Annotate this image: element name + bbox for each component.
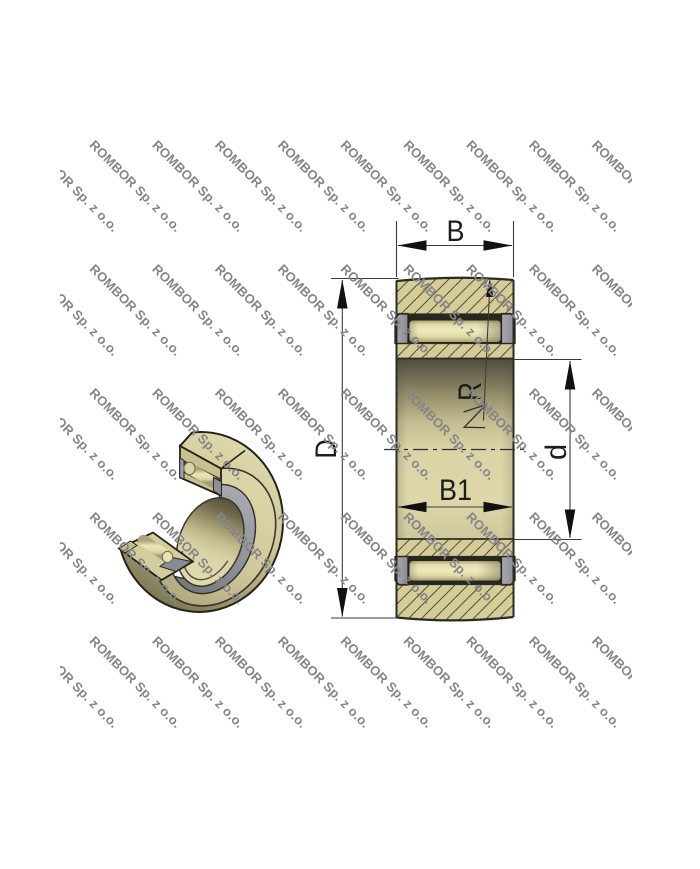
svg-text:B: B bbox=[447, 215, 465, 248]
svg-text:B1: B1 bbox=[439, 474, 472, 507]
